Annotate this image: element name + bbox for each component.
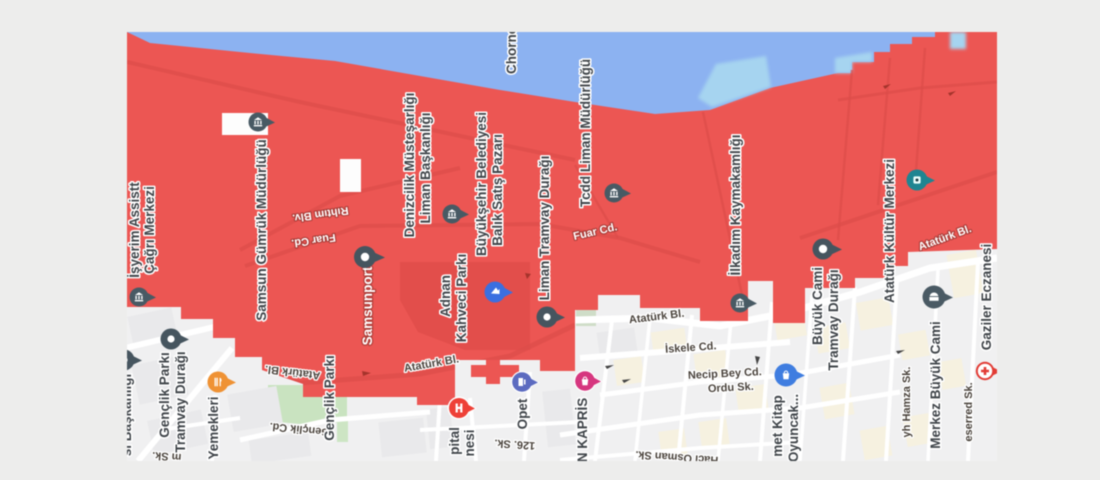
svg-text:Liman Başkanlığı: Liman Başkanlığı (418, 112, 433, 223)
svg-text:Çağrı Merkezi: Çağrı Merkezi (142, 186, 157, 274)
svg-text:Denizcilik Müsteşarlığı: Denizcilik Müsteşarlığı (402, 93, 417, 238)
svg-text:Oyuncak...: Oyuncak... (786, 394, 801, 462)
svg-text:Yemekleri: Yemekleri (206, 396, 221, 459)
svg-text:Ordu Sk.: Ordu Sk. (708, 381, 754, 395)
svg-text:N KAPRİS: N KAPRİS (575, 398, 590, 463)
svg-text:eserred Sk.: eserred Sk. (963, 382, 975, 441)
svg-text:İlkadım Kaymakamlığı: İlkadım Kaymakamlığı (728, 134, 743, 275)
svg-text:Tcdd Liman Müdürlüğü: Tcdd Liman Müdürlüğü (578, 59, 593, 207)
svg-text:İşyerim Assistt: İşyerim Assistt (127, 182, 142, 278)
svg-text:Balık Satış Pazarı: Balık Satış Pazarı (490, 134, 505, 246)
svg-text:Adnan: Adnan (438, 275, 453, 317)
svg-text:nesi: nesi (462, 429, 477, 456)
svg-text:Samsun Gümrük Müdürlüğü: Samsun Gümrük Müdürlüğü (254, 139, 269, 321)
svg-text:Tramvay Durağı: Tramvay Durağı (173, 351, 188, 452)
svg-text:Merkez Büyük Cami: Merkez Büyük Cami (928, 321, 943, 449)
svg-text:Liman Tramvay Durağı: Liman Tramvay Durağı (537, 156, 552, 301)
svg-text:Gençlik Parkı: Gençlik Parkı (157, 352, 172, 438)
svg-text:met Kitap: met Kitap (770, 395, 785, 457)
svg-text:Atatürk Kültür Merkezi: Atatürk Kültür Merkezi (882, 159, 897, 303)
svg-text:Gaziler Eczanesi: Gaziler Eczanesi (979, 244, 994, 351)
svg-text:Samsunport: Samsunport (360, 266, 375, 345)
svg-text:Büyükşehir Belediyesi: Büyükşehir Belediyesi (474, 112, 489, 256)
svg-text:pital: pital (447, 427, 462, 455)
svg-text:yh Hamza Sk.: yh Hamza Sk. (901, 367, 913, 438)
svg-text:Büyük Cami: Büyük Cami (810, 267, 825, 345)
svg-text:Tramvay Durağı: Tramvay Durağı (826, 269, 841, 370)
svg-text:Kahveci Parkı: Kahveci Parkı (454, 254, 469, 343)
svg-text:Gençlik Parkı: Gençlik Parkı (322, 355, 337, 441)
svg-text:Opet: Opet (515, 398, 530, 429)
svg-text:Chorno: Chorno (504, 26, 519, 74)
